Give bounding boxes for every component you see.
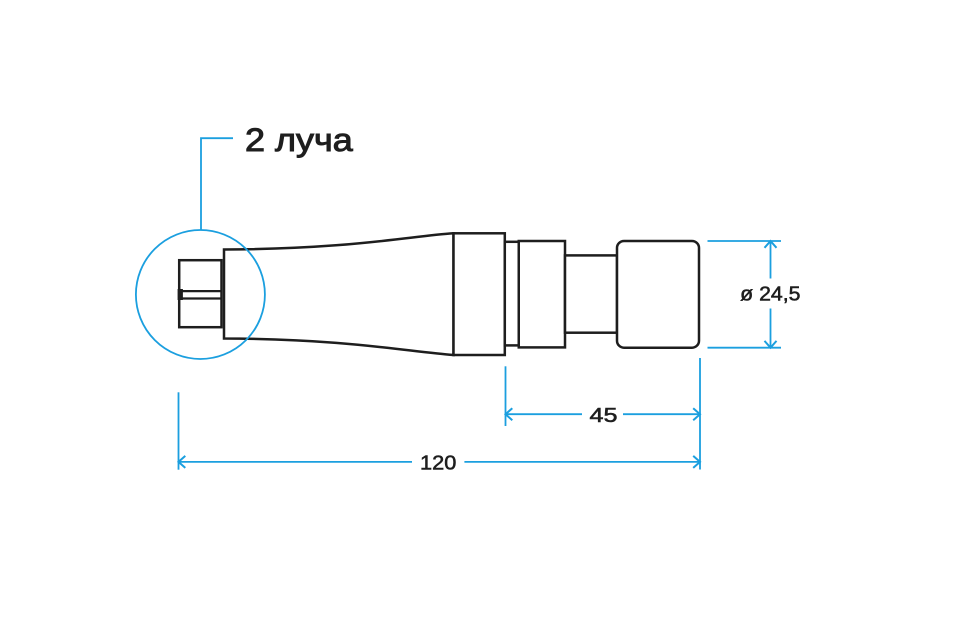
svg-text:2 луча: 2 луча (245, 122, 353, 158)
svg-text:ø 24,5: ø 24,5 (740, 284, 800, 306)
svg-text:120: 120 (420, 452, 456, 474)
svg-text:45: 45 (590, 405, 618, 427)
